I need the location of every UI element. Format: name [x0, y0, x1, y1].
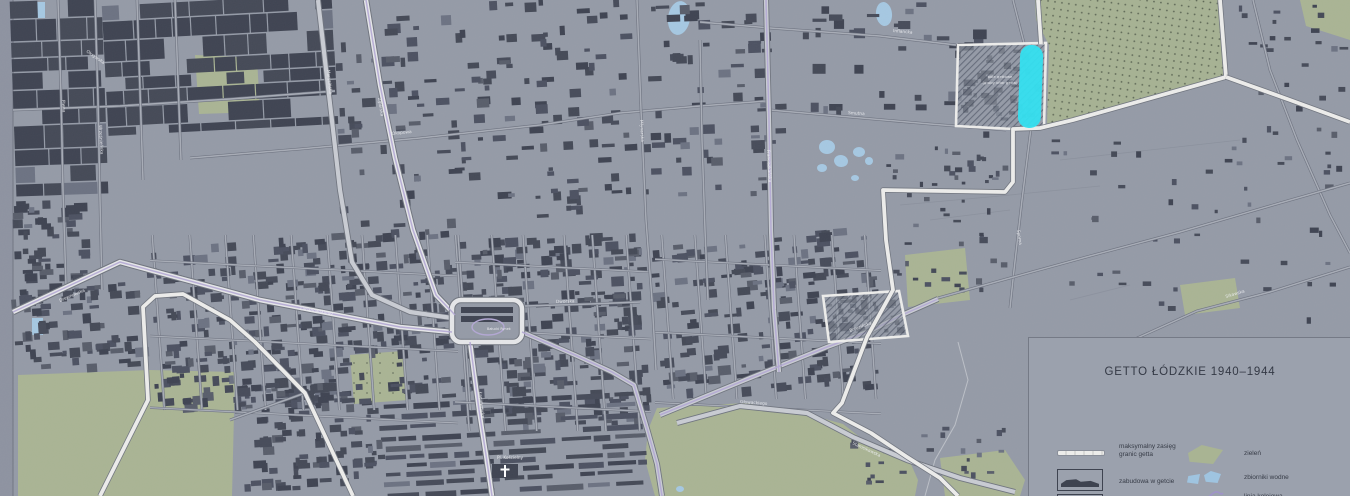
legend-label-buildings: zabudowa w getcie: [1119, 478, 1174, 486]
legend-label-green: zieleń: [1244, 450, 1261, 458]
building-swatch-icon: [1061, 476, 1099, 487]
map-viewer: MarysińskaZgierskaOkopowaŁagiewnickaLima…: [0, 0, 1350, 496]
railway-swatch-icon: [1187, 490, 1225, 496]
legend-swatch-green: [1185, 445, 1223, 464]
legend-label-water: zbiorniki wodne: [1244, 474, 1289, 482]
legend-title: GETTO ŁÓDZKIE 1940–1944: [1029, 366, 1350, 378]
legend-swatch-ghetto-extent: [1057, 450, 1105, 456]
green-swatch-icon: [1185, 445, 1223, 464]
legend-swatch-buildings: [1057, 469, 1103, 491]
legend-panel: GETTO ŁÓDZKIE 1940–1944 maksymalny zasię…: [1028, 337, 1350, 496]
legend-swatch-railway: [1187, 490, 1225, 496]
water-swatch-icon: [1187, 471, 1231, 485]
legend-swatch-water: [1187, 471, 1231, 485]
legend-label-ghetto-extent: maksymalny zasięg granic getta: [1119, 443, 1176, 460]
